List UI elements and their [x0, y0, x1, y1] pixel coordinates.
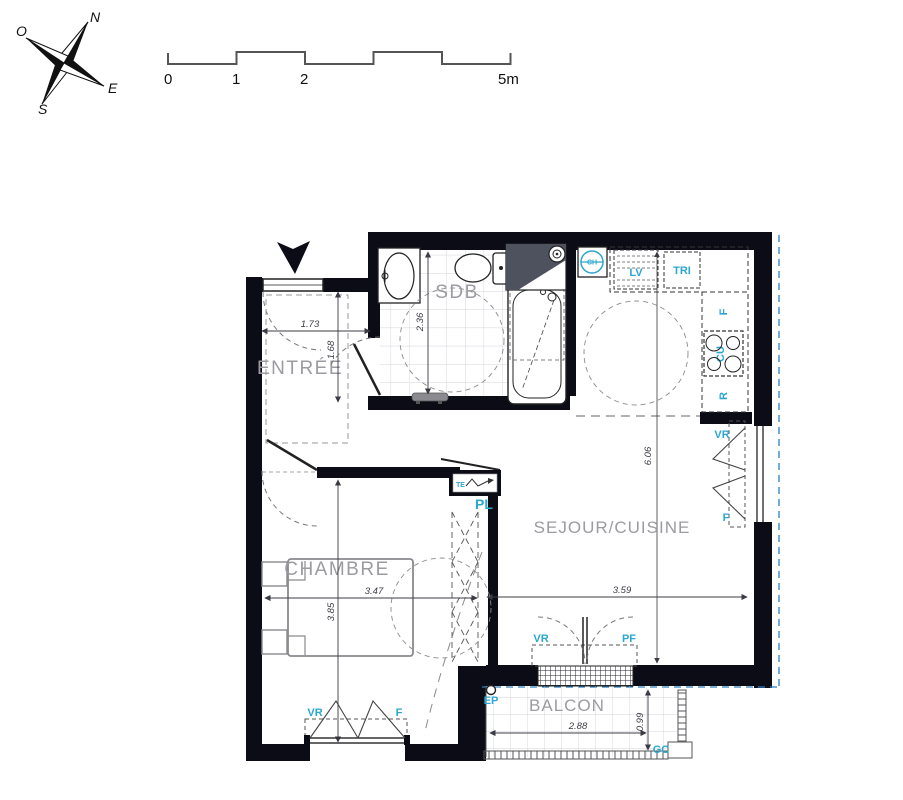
ep-label: EP [484, 695, 499, 707]
water-heater: CH [578, 247, 607, 277]
scale-tick-5m: 5m [498, 71, 519, 88]
dim-balcon-width: 2.88 [568, 721, 588, 732]
dishwasher: LV [614, 250, 658, 289]
dishwasher-label: LV [629, 267, 643, 279]
chambre-door [262, 440, 317, 526]
room-balcon: BALCON 2.88 0.99 EP GC [484, 686, 692, 760]
dim-sejour-width: 3.59 [613, 585, 632, 596]
electrical-panel: TE [441, 459, 501, 496]
wall-chambre-bottom-right [405, 744, 482, 761]
wall-left [246, 277, 262, 761]
dim-sejour-depth: 6.06 [643, 446, 654, 465]
technical-shaft [506, 244, 566, 290]
dim-entree-depth: 1.68 [326, 340, 337, 359]
recycling-bin: TRI [664, 252, 700, 288]
cooktop: CU [704, 331, 743, 376]
scale-bar-line [168, 52, 511, 64]
scale-bar: 0 1 2 5m [164, 52, 519, 88]
water-heater-label: CH [587, 260, 597, 267]
kitchen-turning-circle [584, 301, 688, 405]
vr-kitchen-window-label: VR [714, 429, 729, 441]
room-entree: ENTRÉE 1.73 1.68 [257, 241, 370, 443]
kitchen-window: VR F [713, 421, 763, 527]
scale-tick-2: 2 [300, 71, 308, 88]
chambre-window: VR F [304, 701, 410, 745]
gc-label: GC [653, 744, 670, 756]
vr-chambre-window-label: VR [307, 707, 322, 719]
wall-entree-top-left [246, 278, 263, 292]
pf-balcony-door-label: PF [622, 633, 636, 645]
placard-label: PL [475, 496, 493, 512]
scale-tick-0: 0 [164, 71, 172, 88]
compass-east-label: E [108, 80, 118, 96]
compass-south-label: S [38, 101, 48, 117]
rainwater-pipe-icon [487, 686, 496, 695]
entree-label: ENTRÉE [257, 358, 343, 379]
balcony-door: VR PF [532, 617, 637, 686]
dim-chambre-depth: 3.85 [326, 602, 337, 621]
entrance-arrow-icon [277, 241, 310, 274]
scale-tick-1: 1 [232, 71, 240, 88]
f-chambre-window-label: F [396, 707, 403, 719]
balcon-label: BALCON [529, 696, 605, 715]
compass-north-label: N [90, 9, 101, 25]
toilet-fixture [455, 253, 510, 284]
floor-plan-drawing: N O E S 0 1 2 5m [0, 0, 903, 800]
wall-top [368, 232, 772, 250]
recycling-label: TRI [673, 265, 691, 277]
wall-entree-top-right [323, 278, 368, 292]
dim-sdb-depth: 2.36 [415, 312, 426, 332]
wall-sejour-bottom-right [633, 665, 754, 686]
vr-balcony-door-label: VR [533, 633, 548, 645]
compass-rose-icon: N O E S [16, 9, 118, 117]
balcon-railing-bottom [484, 751, 668, 759]
bathtub-fixture [508, 284, 566, 404]
f-kitchen-window-label: F [723, 512, 730, 524]
wall-kitchen-stub [700, 412, 752, 424]
wall-dressing-sejour [488, 494, 498, 666]
wall-right-lower [754, 522, 772, 688]
sink-fixture [378, 248, 420, 303]
wall-right-upper [754, 232, 772, 426]
sejour-label: SEJOUR/CUISINE [534, 518, 691, 537]
sdb-label: SDB [435, 282, 479, 303]
fridge-label: F [718, 308, 730, 315]
dressing-strip [452, 512, 478, 662]
wall-entree-chambre [317, 467, 460, 478]
compass-west-label: O [16, 23, 27, 39]
threshold-hatch [538, 666, 633, 686]
chambre-label: CHAMBRE [284, 559, 390, 580]
floor-plan-page: N O E S 0 1 2 5m [0, 0, 903, 800]
wall-sejour-bottom-left [486, 665, 538, 686]
range-storage-label: R [718, 392, 730, 400]
dim-entree-width: 1.73 [301, 319, 320, 330]
wall-sdb-kitchen [566, 250, 576, 396]
wall-chambre-bottom-left [246, 744, 310, 761]
cooktop-label: CU [715, 346, 727, 362]
balcon-railing-corner [668, 742, 692, 758]
te-label: TE [456, 482, 465, 489]
dim-chambre-width: 3.47 [365, 586, 384, 597]
dim-balcon-depth: 0.99 [635, 712, 646, 731]
